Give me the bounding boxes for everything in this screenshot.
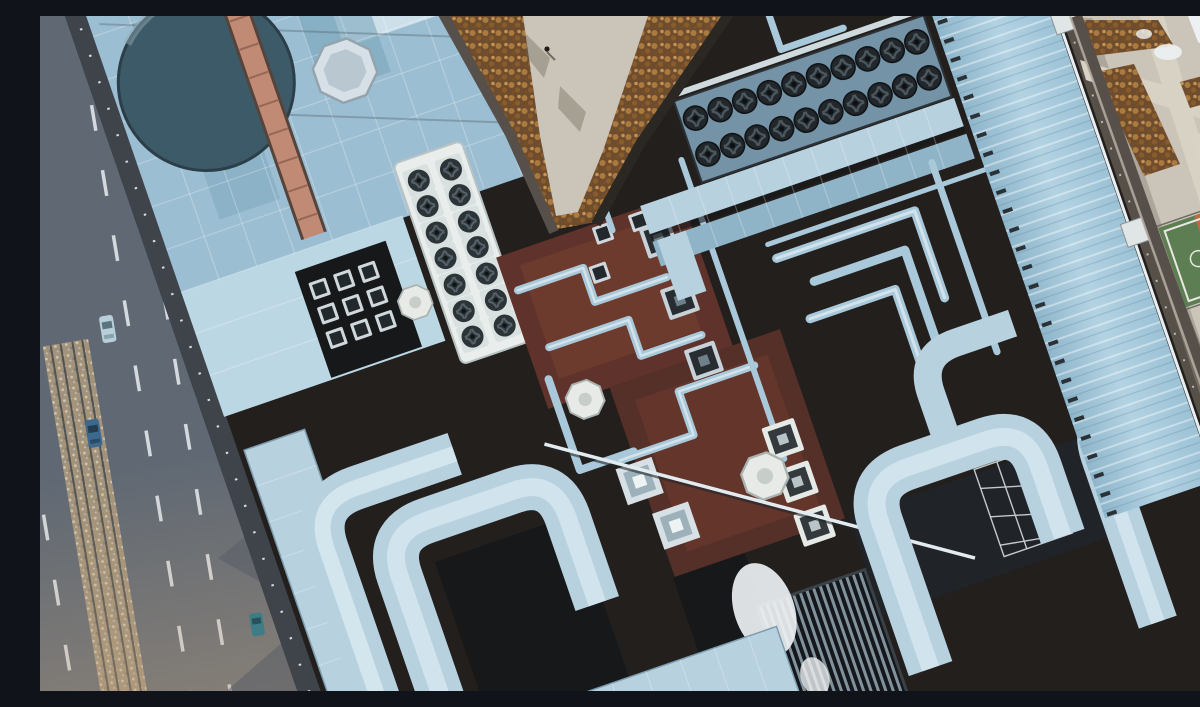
rooftop-aerial-svg (40, 16, 1200, 691)
rooftop-aerial-photo: Top-down aerial view of a large commerci… (40, 16, 1200, 691)
pedestrian (544, 46, 549, 51)
